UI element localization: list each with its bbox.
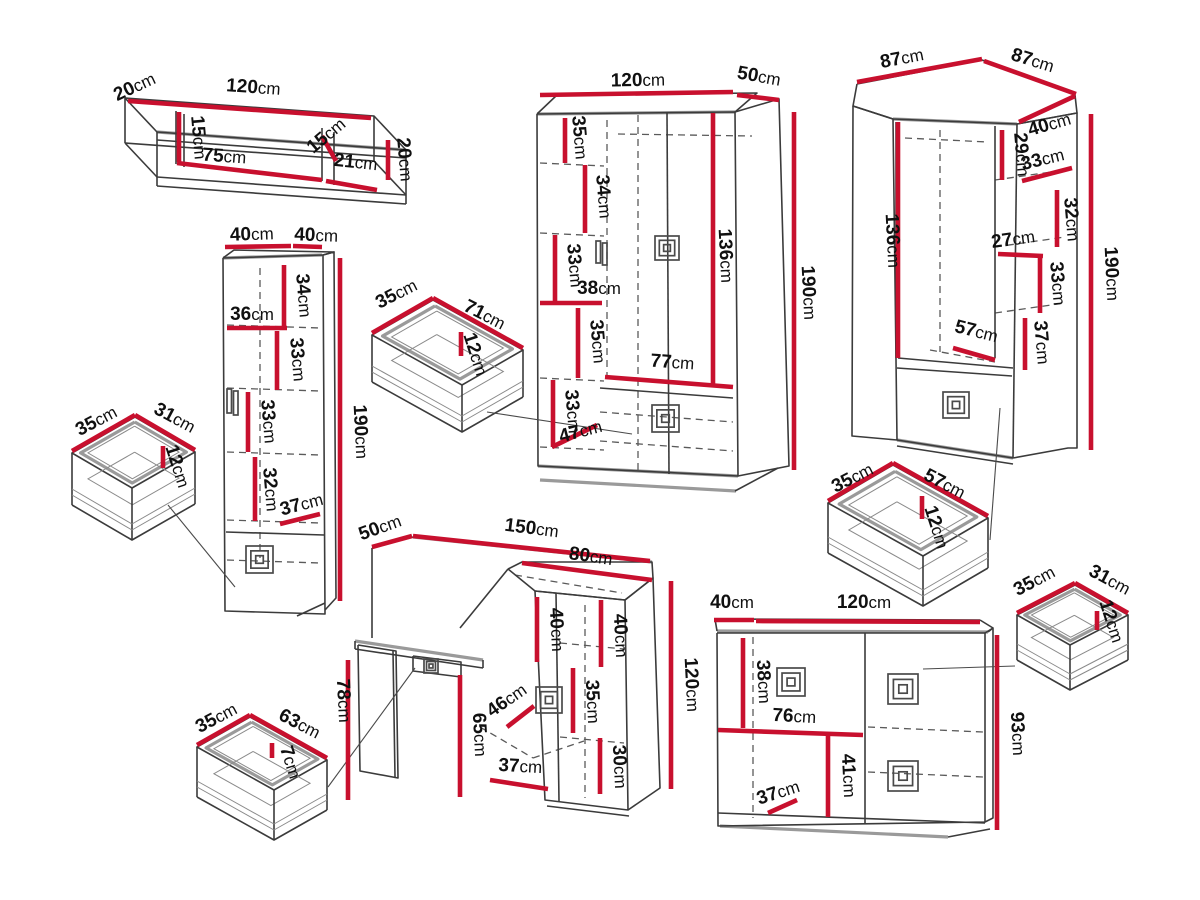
- dim-label-corner-wardrobe: 37cm: [1029, 320, 1054, 365]
- edge-handle-icon: [234, 391, 239, 415]
- dim-label-desk-with-cabinet: 35cm: [581, 679, 604, 724]
- dim-label-corner-wardrobe: 57cm: [953, 316, 1001, 347]
- dim-label-desk-with-cabinet: 40cm: [545, 607, 568, 652]
- dim-label-desk-with-cabinet: 150cm: [503, 515, 560, 542]
- dim-label-desk-with-cabinet: 30cm: [608, 744, 631, 789]
- dim-label-tall-cabinet: 40cm: [230, 223, 275, 246]
- dim-label-corner-wardrobe: 136cm: [881, 213, 905, 268]
- dim-label-desk-with-cabinet: 80cm: [568, 543, 614, 570]
- edge-handle-icon: [596, 241, 601, 263]
- dimension-labels: 20cm120cm15cm75cm15cm21cm20cm40cm40cm34c…: [72, 44, 1134, 809]
- dim-label-tall-cabinet: 190cm: [349, 404, 373, 459]
- edge-handle-icon: [227, 389, 232, 413]
- dim-label-corner-wardrobe: 33cm: [1045, 261, 1070, 306]
- square-handle-icon: [893, 766, 912, 785]
- dim-label-two-door-wardrobe: 120cm: [611, 70, 666, 92]
- dim-label-small-drawer-right: 12cm: [1094, 597, 1128, 645]
- dim-label-two-door-wardrobe: 34cm: [591, 174, 616, 219]
- edge-handle-icon: [603, 243, 608, 265]
- dim-label-desk-with-cabinet: 120cm: [680, 657, 704, 712]
- dim-label-chest-of-drawers: 38cm: [752, 659, 775, 704]
- dim-label-two-door-wardrobe: 50cm: [736, 62, 783, 90]
- dim-label-wall-shelf: 120cm: [226, 75, 282, 100]
- square-handle-icon: [893, 679, 912, 698]
- furniture-dimension-diagram: 20cm120cm15cm75cm15cm21cm20cm40cm40cm34c…: [0, 0, 1200, 900]
- dim-label-desk-with-cabinet: 78cm: [332, 678, 355, 723]
- dim-label-chest-of-drawers: 41cm: [837, 753, 860, 798]
- square-handle-icon: [899, 685, 907, 693]
- dim-label-tall-cabinet: 34cm: [291, 273, 316, 318]
- dim-label-chest-of-drawers: 37cm: [754, 776, 802, 810]
- dim-label-two-door-wardrobe: 136cm: [714, 228, 738, 283]
- dim-label-small-drawer-left: 12cm: [160, 442, 194, 490]
- square-handle-icon: [952, 401, 959, 408]
- square-handle-icon: [427, 662, 436, 671]
- dim-label-wide-drawer-right: 35cm: [828, 459, 877, 498]
- square-handle-icon: [657, 410, 674, 427]
- dim-label-tall-cabinet: 40cm: [294, 224, 339, 247]
- square-handle-icon: [948, 397, 965, 414]
- dim-label-wall-shelf: 21cm: [333, 150, 379, 175]
- dim-label-two-door-wardrobe: 77cm: [650, 351, 695, 375]
- dim-label-chest-of-drawers: 76cm: [772, 705, 817, 728]
- dim-label-tall-cabinet: 33cm: [285, 337, 310, 382]
- dim-label-chest-of-drawers: 93cm: [1006, 711, 1029, 756]
- square-handle-icon: [782, 673, 800, 691]
- dim-label-desk-with-cabinet: 65cm: [468, 712, 491, 757]
- square-handle-icon: [888, 674, 918, 704]
- square-handle-icon: [541, 692, 558, 709]
- diagram-canvas: 20cm120cm15cm75cm15cm21cm20cm40cm40cm34c…: [0, 0, 1200, 900]
- square-handle-icon: [545, 696, 552, 703]
- dim-label-small-drawer-left: 31cm: [150, 399, 199, 438]
- dim-label-chest-of-drawers: 120cm: [837, 592, 891, 613]
- square-handle-icon: [251, 551, 268, 568]
- dim-label-two-door-wardrobe: 35cm: [567, 115, 592, 160]
- dim-label-two-door-wardrobe: 38cm: [577, 278, 621, 299]
- dim-label-wall-shelf: 75cm: [202, 145, 247, 169]
- dim-label-wall-shelf: 20cm: [392, 137, 417, 182]
- dim-label-corner-wardrobe: 27cm: [990, 226, 1036, 253]
- dim-label-corner-wardrobe: 32cm: [1059, 197, 1084, 242]
- dim-label-desk-with-cabinet: 40cm: [609, 613, 632, 658]
- dim-label-desk-with-cabinet: 37cm: [498, 755, 543, 778]
- square-handle-icon: [888, 761, 918, 791]
- dim-label-corner-wardrobe: 190cm: [1100, 246, 1124, 301]
- square-handle-icon: [787, 678, 795, 686]
- dim-label-tall-cabinet: 36cm: [230, 304, 274, 325]
- dim-label-chest-of-drawers: 40cm: [710, 592, 754, 613]
- dim-label-two-door-wardrobe: 190cm: [797, 265, 821, 320]
- square-handle-icon: [429, 664, 433, 668]
- dim-label-two-door-wardrobe: 35cm: [585, 319, 610, 364]
